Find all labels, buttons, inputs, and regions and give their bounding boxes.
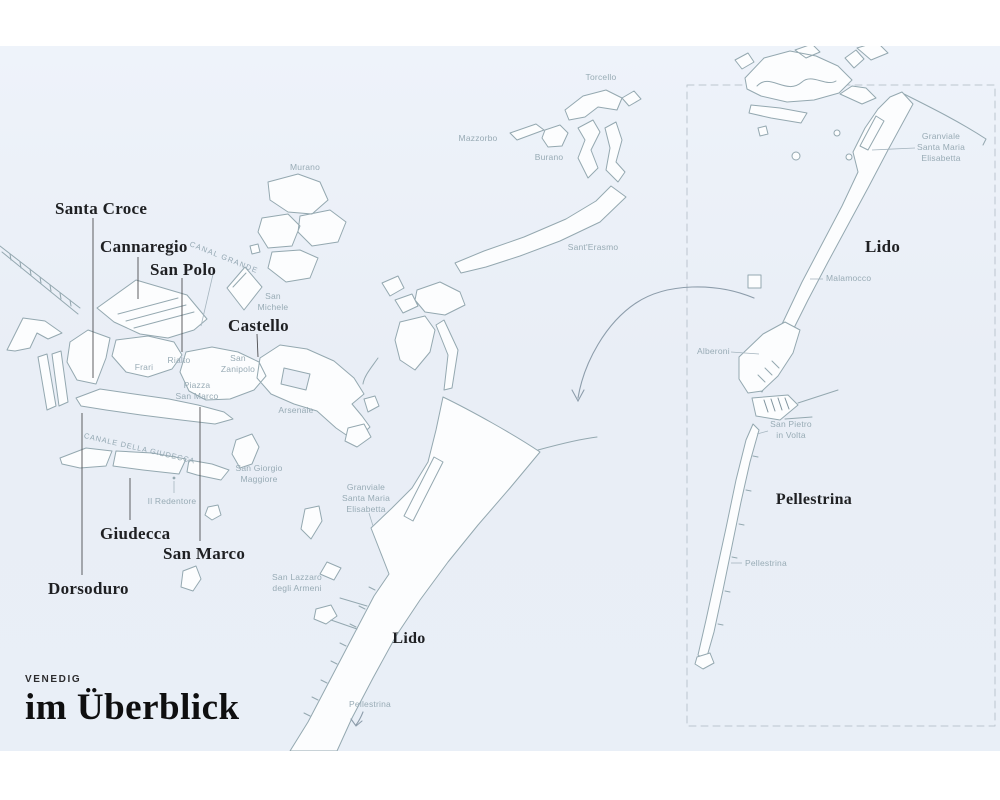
label-granviale-inset: Granviale Santa Maria Elisabetta	[917, 131, 965, 164]
label-torcello: Torcello	[586, 72, 617, 83]
label-rialto: Rialto	[168, 355, 191, 366]
label-san-lazzaro: San Lazzaro degli Armeni	[272, 572, 322, 594]
venice-city-blocks	[67, 280, 370, 441]
label-pellestrina-small: Pellestrina	[745, 558, 787, 569]
label-burano: Burano	[535, 152, 564, 163]
murano-islands	[250, 174, 346, 282]
label-giudecca: Giudecca	[100, 524, 170, 544]
label-malamocco: Malamocco	[826, 273, 871, 284]
inset-malamocco-inlet	[752, 395, 798, 420]
label-lido-inset: Lido	[865, 237, 900, 257]
label-il-redentore: Il Redentore	[148, 496, 197, 507]
inset-pellestrina-island	[698, 424, 759, 660]
inset-mini-venice	[735, 46, 888, 136]
map-title-heading: im Überblick	[25, 686, 240, 729]
overview-arrow	[578, 287, 754, 398]
label-san-marco: San Marco	[163, 544, 245, 564]
inset-islet-dot	[834, 130, 840, 136]
southern-islets	[181, 505, 341, 624]
label-granviale-main: Granviale Santa Maria Elisabetta	[342, 482, 390, 515]
redentore-marker-dot	[173, 477, 176, 480]
map-title-block: VENEDIG im Überblick	[25, 674, 240, 729]
map-title-kicker: VENEDIG	[25, 674, 240, 685]
inset-square-islet	[748, 275, 761, 288]
sant-erasmo-island	[455, 186, 626, 273]
label-san-polo: San Polo	[150, 260, 216, 280]
venice-overview-map	[0, 46, 1000, 751]
label-san-pietro-in-volta: San Pietro in Volta	[770, 419, 812, 441]
label-castello: Castello	[228, 316, 289, 336]
label-cannaregio: Cannaregio	[100, 237, 188, 257]
label-frari: Frari	[135, 362, 153, 373]
inset-islet-dot	[792, 152, 800, 160]
label-san-giorgio: San Giorgio Maggiore	[235, 463, 282, 485]
inset-alberoni-area	[739, 322, 800, 393]
label-murano: Murano	[290, 162, 320, 173]
label-dorsoduro: Dorsoduro	[48, 579, 129, 599]
label-santa-croce: Santa Croce	[55, 199, 147, 219]
inset-islet-dot	[846, 154, 852, 160]
venice-overview-page: { "title": { "kicker": "VENEDIG", "headi…	[0, 0, 1000, 800]
label-mazzorbo: Mazzorbo	[459, 133, 498, 144]
label-sant-erasmo: Sant'Erasmo	[568, 242, 619, 253]
label-san-michele: San Michele	[258, 291, 289, 313]
label-piazza-san-marco: Piazza San Marco	[176, 380, 219, 402]
label-pellestrina-main: Pellestrina	[349, 699, 391, 710]
port-islands	[7, 318, 68, 410]
label-pellestrina-inset: Pellestrina	[776, 491, 852, 509]
torcello-burano-islands	[510, 90, 641, 182]
label-arsenale: Arsenale	[278, 405, 313, 416]
leader-castello	[257, 334, 258, 357]
label-lido-main: Lido	[392, 630, 425, 648]
label-san-zanipolo: San Zanipolo	[221, 353, 255, 375]
causeway-bridge	[0, 246, 80, 314]
channel-curve	[363, 358, 378, 384]
label-alberoni: Alberoni	[697, 346, 730, 357]
venice-map-canvas	[0, 46, 1000, 751]
inset-border	[687, 85, 995, 726]
